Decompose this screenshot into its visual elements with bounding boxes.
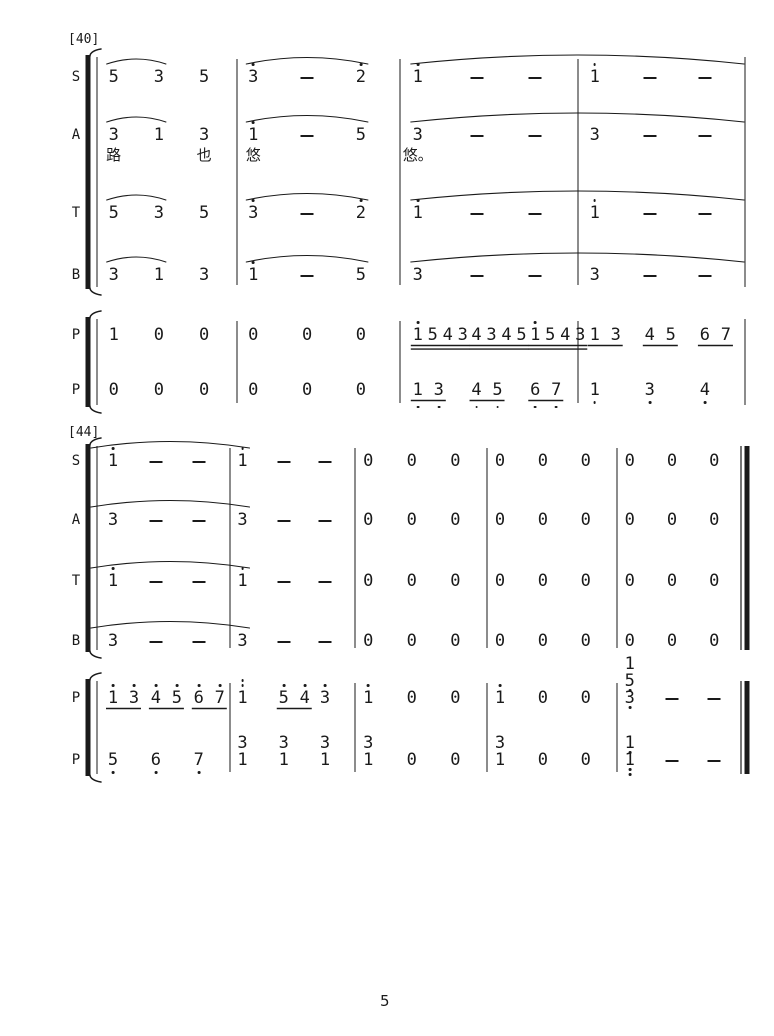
notes-layer: [40]S5353211A3131533T5353211B3131533P100…: [0, 0, 774, 1036]
voice-label: S: [72, 70, 80, 84]
octave-dot-low: [154, 771, 157, 774]
note-digit: 1: [363, 690, 373, 707]
voice-label: T: [72, 574, 80, 588]
note-digit: 6: [151, 752, 161, 769]
dash-sustain: [698, 213, 711, 216]
note-digit: 3: [129, 690, 139, 707]
octave-dot-low: [197, 771, 200, 774]
note-digit: 1: [413, 205, 423, 222]
octave-dot-high: [252, 63, 255, 66]
dash-sustain: [192, 461, 205, 464]
rest-digit: 0: [199, 382, 209, 399]
octave-dot-low: [496, 406, 499, 409]
dash-sustain: [192, 581, 205, 584]
dash-sustain: [192, 520, 205, 523]
dash-sustain: [149, 520, 162, 523]
voice-label: B: [72, 634, 80, 648]
dash-sustain: [529, 77, 542, 80]
octave-dot-high: [593, 63, 596, 66]
rest-digit: 0: [109, 382, 119, 399]
octave-dot-low: [555, 406, 558, 409]
dash-sustain: [277, 581, 290, 584]
rest-digit: 0: [154, 327, 164, 344]
dash-sustain: [529, 135, 542, 138]
octave-dot-high: [303, 684, 306, 687]
octave-dot-low: [628, 706, 631, 709]
note-digit: 1: [495, 690, 505, 707]
rest-digit: 0: [625, 512, 635, 529]
lyric-syllable: 路: [106, 148, 121, 163]
note-digit: 4: [471, 327, 481, 344]
note-digit: 1: [413, 382, 423, 399]
voice-label: B: [72, 268, 80, 282]
dash-sustain: [149, 641, 162, 644]
rest-digit: 0: [450, 512, 460, 529]
note-digit: 4: [151, 690, 161, 707]
octave-dot-high: [241, 567, 244, 570]
note-digit: 3: [108, 633, 118, 650]
dash-sustain: [301, 77, 314, 80]
note-digit: 3: [237, 512, 247, 529]
octave-dot-high: [133, 684, 136, 687]
note-digit: 5: [545, 327, 555, 344]
octave-dot-high: [367, 684, 370, 687]
octave-dot-low: [437, 406, 440, 409]
octave-dot-high: [197, 684, 200, 687]
rest-digit: 0: [625, 573, 635, 590]
octave-dot-high: [252, 199, 255, 202]
dash-sustain: [319, 520, 332, 523]
voice-label: P: [72, 383, 80, 397]
note-digit: 3: [108, 512, 118, 529]
rest-digit: 0: [356, 382, 366, 399]
rest-digit: 0: [356, 327, 366, 344]
octave-dot-high: [416, 321, 419, 324]
octave-dot-high: [282, 684, 285, 687]
note-digit: 1: [237, 752, 247, 769]
note-digit: 1: [530, 327, 540, 344]
note-digit: 5: [172, 690, 182, 707]
dash-sustain: [277, 641, 290, 644]
octave-dot-high: [534, 321, 537, 324]
note-digit: 5: [108, 752, 118, 769]
rest-digit: 0: [581, 453, 591, 470]
rest-digit: 0: [581, 690, 591, 707]
note-digit: 1: [248, 127, 258, 144]
note-digit: 4: [300, 690, 310, 707]
note-digit: 1: [590, 382, 600, 399]
rest-digit: 0: [625, 453, 635, 470]
note-digit: 5: [492, 382, 502, 399]
note-digit: 1: [363, 752, 373, 769]
note-digit: 5: [109, 69, 119, 86]
note-digit: 3: [248, 205, 258, 222]
note-digit: 3: [237, 633, 247, 650]
rest-digit: 0: [450, 453, 460, 470]
note-digit: 4: [560, 327, 570, 344]
octave-dot-low: [475, 406, 478, 409]
rest-digit: 0: [248, 382, 258, 399]
octave-dot-low: [704, 401, 707, 404]
octave-dot-high: [416, 199, 419, 202]
rest-digit: 0: [538, 512, 548, 529]
dash-sustain: [666, 760, 679, 763]
octave-dot-low: [112, 771, 115, 774]
rest-digit: 0: [407, 512, 417, 529]
note-digit: 1: [108, 690, 118, 707]
note-digit: 5: [279, 690, 289, 707]
dash-sustain: [698, 77, 711, 80]
rest-digit: 0: [581, 573, 591, 590]
note-digit: 3: [154, 69, 164, 86]
note-digit: 3: [109, 267, 119, 284]
note-digit: 5: [356, 127, 366, 144]
octave-dot-low: [628, 773, 631, 776]
note-digit: 3: [625, 690, 635, 707]
note-digit: 1: [109, 327, 119, 344]
dash-sustain: [708, 698, 721, 701]
octave-dot-high: [252, 261, 255, 264]
note-digit: 1: [590, 69, 600, 86]
rest-digit: 0: [581, 512, 591, 529]
note-digit: 1: [279, 752, 289, 769]
note-digit: 4: [645, 327, 655, 344]
rest-digit: 0: [407, 752, 417, 769]
note-digit: 1: [108, 573, 118, 590]
rest-digit: 0: [538, 633, 548, 650]
note-digit: 3: [199, 267, 209, 284]
dash-sustain: [643, 135, 656, 138]
note-digit: 3: [154, 205, 164, 222]
octave-dot-low: [628, 768, 631, 771]
rest-digit: 0: [450, 573, 460, 590]
note-digit: 1: [590, 327, 600, 344]
rest-digit: 0: [302, 327, 312, 344]
note-digit: 3: [434, 382, 444, 399]
note-digit: 5: [666, 327, 676, 344]
note-digit: 6: [700, 327, 710, 344]
rest-digit: 0: [495, 573, 505, 590]
octave-dot-high: [241, 684, 244, 687]
rest-digit: 0: [450, 690, 460, 707]
dash-sustain: [470, 77, 483, 80]
rest-digit: 0: [154, 382, 164, 399]
dash-sustain: [149, 581, 162, 584]
rest-digit: 0: [538, 752, 548, 769]
octave-dot-low: [593, 401, 596, 404]
rest-digit: 0: [248, 327, 258, 344]
dash-sustain: [301, 275, 314, 278]
note-digit: 7: [215, 690, 225, 707]
note-digit: 7: [194, 752, 204, 769]
dash-sustain: [319, 581, 332, 584]
voice-label: S: [72, 454, 80, 468]
rest-digit: 0: [581, 752, 591, 769]
octave-dot-low: [416, 406, 419, 409]
octave-dot-high: [112, 567, 115, 570]
note-digit: 1: [237, 453, 247, 470]
note-digit: 1: [237, 573, 247, 590]
note-digit: 3: [575, 327, 585, 344]
octave-dot-high: [252, 121, 255, 124]
rest-digit: 0: [538, 453, 548, 470]
rest-digit: 0: [363, 512, 373, 529]
lyric-syllable: 也: [197, 148, 212, 163]
note-digit: 3: [413, 127, 423, 144]
note-digit: 1: [154, 127, 164, 144]
note-digit: 3: [109, 127, 119, 144]
voice-label: P: [72, 691, 80, 705]
octave-dot-high: [359, 199, 362, 202]
dash-sustain: [708, 760, 721, 763]
rest-digit: 0: [625, 633, 635, 650]
octave-dot-high: [359, 63, 362, 66]
note-digit: 4: [471, 382, 481, 399]
rest-digit: 0: [199, 327, 209, 344]
note-digit: 7: [551, 382, 561, 399]
rest-digit: 0: [363, 573, 373, 590]
octave-dot-high: [175, 684, 178, 687]
rest-digit: 0: [667, 573, 677, 590]
note-digit: 6: [530, 382, 540, 399]
voice-label: A: [72, 513, 80, 527]
rest-digit: 0: [407, 690, 417, 707]
note-digit: 3: [199, 127, 209, 144]
note-digit: 5: [109, 205, 119, 222]
rest-digit: 0: [407, 573, 417, 590]
dash-sustain: [301, 213, 314, 216]
octave-dot-high: [218, 684, 221, 687]
rest-digit: 0: [538, 690, 548, 707]
voice-label: A: [72, 128, 80, 142]
rest-digit: 0: [667, 512, 677, 529]
octave-dot-low: [648, 401, 651, 404]
dash-sustain: [529, 275, 542, 278]
dash-sustain: [149, 461, 162, 464]
dash-sustain: [698, 275, 711, 278]
measure-number: [44]: [68, 426, 99, 439]
dash-sustain: [192, 641, 205, 644]
note-digit: 5: [199, 69, 209, 86]
dash-sustain: [319, 641, 332, 644]
octave-dot-high: [416, 63, 419, 66]
dash-sustain: [698, 135, 711, 138]
rest-digit: 0: [495, 453, 505, 470]
rest-digit: 0: [538, 573, 548, 590]
note-digit: 3: [320, 690, 330, 707]
rest-digit: 0: [495, 512, 505, 529]
dash-sustain: [529, 213, 542, 216]
note-digit: 3: [458, 327, 468, 344]
dash-sustain: [470, 213, 483, 216]
note-digit: 1: [320, 752, 330, 769]
rest-digit: 0: [302, 382, 312, 399]
note-digit: 1: [248, 267, 258, 284]
voice-label: P: [72, 328, 80, 342]
dash-sustain: [643, 77, 656, 80]
dash-sustain: [277, 520, 290, 523]
rest-digit: 0: [363, 633, 373, 650]
dash-sustain: [643, 213, 656, 216]
note-digit: 3: [645, 382, 655, 399]
rest-digit: 0: [450, 752, 460, 769]
note-digit: 3: [611, 327, 621, 344]
note-digit: 4: [501, 327, 511, 344]
note-digit: 3: [486, 327, 496, 344]
rest-digit: 0: [363, 453, 373, 470]
rest-digit: 0: [581, 633, 591, 650]
octave-dot-high: [112, 684, 115, 687]
octave-dot-high: [593, 199, 596, 202]
note-digit: 1: [590, 205, 600, 222]
rest-digit: 0: [667, 453, 677, 470]
rest-digit: 0: [495, 633, 505, 650]
rest-digit: 0: [667, 633, 677, 650]
octave-dot-high: [154, 684, 157, 687]
dash-sustain: [470, 275, 483, 278]
dash-sustain: [301, 135, 314, 138]
note-digit: 2: [356, 69, 366, 86]
rest-digit: 0: [450, 633, 460, 650]
rest-digit: 0: [407, 453, 417, 470]
rest-digit: 0: [407, 633, 417, 650]
note-digit: 1: [495, 752, 505, 769]
octave-dot-high: [324, 684, 327, 687]
note-digit: 3: [590, 267, 600, 284]
octave-dot-low: [534, 406, 537, 409]
note-digit: 1: [625, 752, 635, 769]
rest-digit: 0: [709, 633, 719, 650]
note-digit: 5: [199, 205, 209, 222]
dash-sustain: [319, 461, 332, 464]
octave-dot-high: [241, 679, 244, 682]
note-digit: 7: [721, 327, 731, 344]
note-digit: 2: [356, 205, 366, 222]
voice-label: T: [72, 206, 80, 220]
octave-dot-high: [112, 447, 115, 450]
octave-dot-high: [499, 684, 502, 687]
note-digit: 3: [413, 267, 423, 284]
note-digit: 3: [248, 69, 258, 86]
dash-sustain: [470, 135, 483, 138]
rest-digit: 0: [709, 573, 719, 590]
octave-dot-high: [241, 447, 244, 450]
dash-sustain: [277, 461, 290, 464]
dash-sustain: [643, 275, 656, 278]
note-digit: 4: [700, 382, 710, 399]
note-digit: 1: [237, 690, 247, 707]
note-digit: 1: [413, 327, 423, 344]
note-digit: 5: [428, 327, 438, 344]
voice-label: P: [72, 753, 80, 767]
rest-digit: 0: [709, 512, 719, 529]
lyric-syllable: 悠: [246, 148, 261, 163]
score-page: [40]S5353211A3131533T5353211B3131533P100…: [0, 0, 774, 1036]
dash-sustain: [666, 698, 679, 701]
note-digit: 1: [154, 267, 164, 284]
measure-number: [40]: [68, 33, 99, 46]
note-digit: 5: [516, 327, 526, 344]
note-digit: 1: [413, 69, 423, 86]
page-number: 5: [380, 994, 390, 1009]
note-digit: 3: [590, 127, 600, 144]
note-digit: 1: [108, 453, 118, 470]
note-digit: 4: [443, 327, 453, 344]
rest-digit: 0: [709, 453, 719, 470]
note-digit: 6: [194, 690, 204, 707]
lyric-syllable: 悠。: [403, 148, 433, 163]
note-digit: 5: [356, 267, 366, 284]
